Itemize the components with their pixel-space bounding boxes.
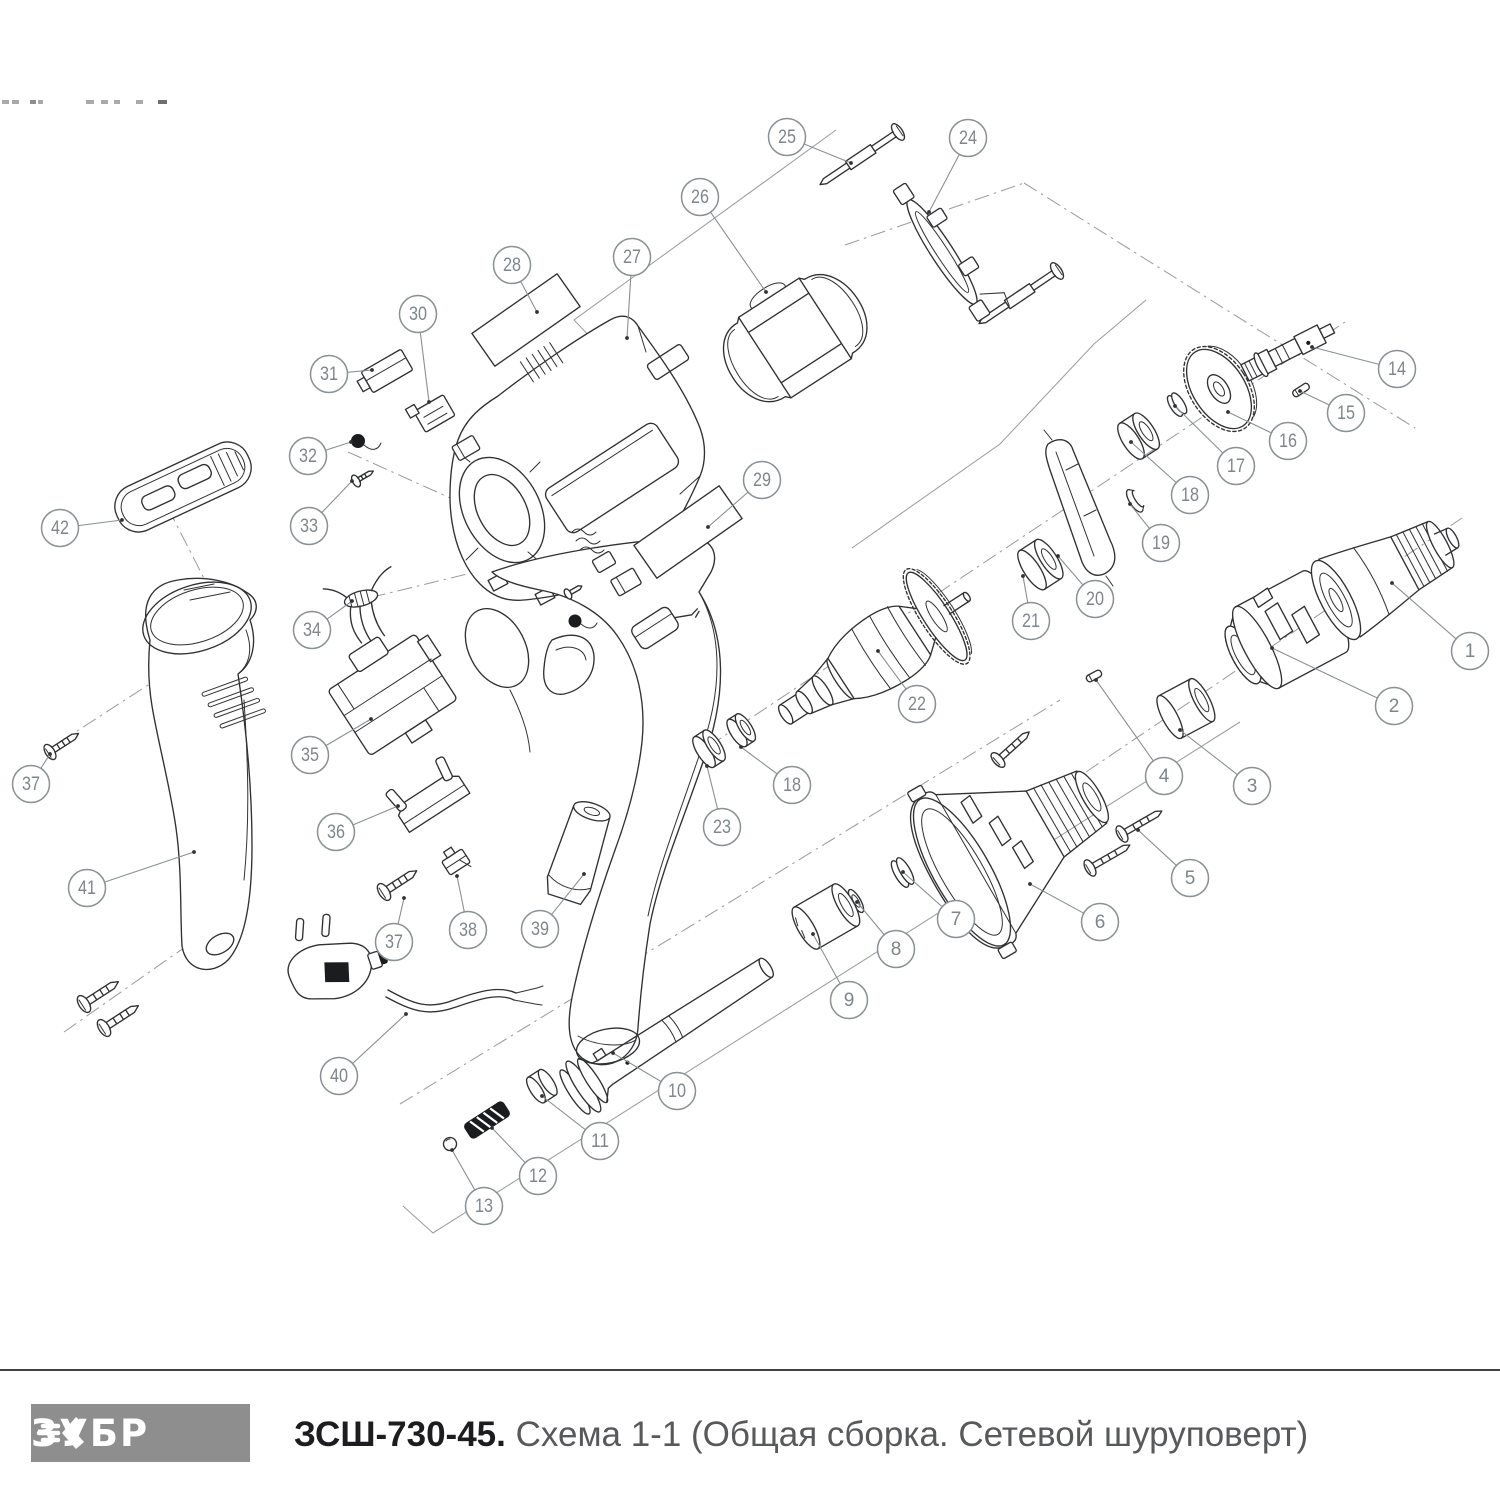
callout-25: 25	[769, 119, 853, 165]
callout-8: 8	[855, 900, 914, 967]
callout-32: 32	[290, 438, 353, 475]
svg-text:28: 28	[503, 255, 521, 276]
svg-text:6: 6	[1095, 912, 1106, 933]
screw-37c	[75, 974, 124, 1015]
callout-37: 37	[13, 752, 52, 802]
gear-16	[1169, 332, 1272, 444]
bearing-18	[1113, 409, 1164, 463]
svg-text:5: 5	[1185, 868, 1196, 889]
callout-12: 12	[490, 1126, 556, 1194]
svg-text:37: 37	[385, 932, 403, 953]
svg-text:35: 35	[301, 745, 319, 766]
svg-text:30: 30	[409, 304, 427, 325]
svg-text:38: 38	[459, 920, 477, 941]
svg-text:20: 20	[1086, 589, 1104, 610]
trigger	[544, 635, 594, 694]
callout-1: 1	[1390, 581, 1488, 669]
screw-5b	[1114, 803, 1167, 844]
callout-3: 3	[1178, 728, 1270, 804]
svg-text:29: 29	[753, 470, 771, 491]
callout-24: 24	[927, 120, 986, 214]
screw-37d	[95, 998, 144, 1039]
belt-clip-42	[108, 435, 259, 539]
svg-text:18: 18	[783, 775, 801, 796]
chuck-1	[1302, 497, 1477, 646]
screw-5a	[1082, 837, 1135, 878]
svg-text:11: 11	[591, 1131, 609, 1152]
motor-screw-25a	[815, 122, 907, 193]
svg-text:8: 8	[891, 939, 902, 960]
front-housing-grip	[453, 529, 721, 1069]
callout-34: 34	[294, 599, 354, 648]
svg-text:25: 25	[778, 127, 796, 148]
svg-text:31: 31	[320, 364, 338, 385]
svg-text:2: 2	[1389, 696, 1400, 717]
switch-35	[318, 613, 472, 766]
svg-text:1: 1	[1465, 641, 1476, 662]
callout-14: 14	[1310, 345, 1415, 387]
model-number: ЗСШ-730-45.	[294, 1415, 506, 1454]
button-32	[352, 435, 382, 450]
svg-text:32: 32	[299, 446, 317, 467]
callout-41: 41	[69, 850, 196, 906]
callout-10: 10	[611, 1051, 695, 1109]
exploded-view-drawing: 1234567891011121314151617181920212223182…	[0, 0, 1500, 1500]
svg-text:23: 23	[713, 817, 731, 838]
armature-22	[751, 548, 999, 763]
svg-text:40: 40	[330, 1066, 348, 1087]
svg-text:41: 41	[78, 878, 96, 899]
svg-text:3: 3	[1247, 776, 1258, 797]
screw-33	[350, 465, 377, 488]
svg-text:18: 18	[1181, 485, 1199, 506]
svg-text:26: 26	[691, 187, 709, 208]
svg-text:42: 42	[51, 518, 69, 539]
callout-18: 18	[739, 745, 810, 803]
svg-text:22: 22	[908, 694, 926, 715]
clip-38	[438, 843, 473, 879]
svg-text:10: 10	[668, 1081, 686, 1102]
zubr-logo: ЗУБР	[31, 1404, 250, 1462]
svg-text:21: 21	[1022, 611, 1040, 632]
brush-plate-24	[890, 170, 1012, 327]
callout-18: 18	[1129, 440, 1208, 513]
cord-knot-34	[322, 567, 408, 651]
callout-23: 23	[704, 764, 741, 845]
svg-text:36: 36	[327, 822, 345, 843]
rear-handle-41	[134, 569, 266, 969]
parts-diagram-page: 1234567891011121314151617181920212223182…	[0, 0, 1500, 1500]
diagram-caption: ЗСШ-730-45. Схема 1-1 (Общая сборка. Сет…	[294, 1416, 1474, 1454]
svg-text:9: 9	[844, 990, 855, 1011]
callout-40: 40	[321, 1012, 408, 1094]
svg-text:24: 24	[959, 128, 977, 149]
zubr-logo-icon	[31, 1404, 95, 1462]
bearing-21	[1013, 535, 1068, 593]
screw-37b	[375, 863, 422, 903]
svg-text:12: 12	[529, 1166, 547, 1187]
callout-15: 15	[1298, 389, 1364, 431]
callout-42: 42	[42, 510, 124, 547]
svg-text:34: 34	[303, 620, 321, 641]
svg-text:14: 14	[1388, 359, 1406, 380]
svg-text:7: 7	[951, 909, 962, 930]
spacer-3	[1152, 675, 1220, 741]
callout-33: 33	[291, 479, 354, 544]
pin-4	[1085, 669, 1102, 683]
svg-text:4: 4	[1159, 766, 1170, 787]
spring-12	[463, 1100, 511, 1139]
motor-screw-25b	[974, 261, 1066, 332]
callout-19: 19	[1128, 502, 1179, 561]
callout-30: 30	[400, 296, 437, 404]
callout-36: 36	[318, 804, 400, 850]
slider-31	[354, 349, 413, 397]
callout-26: 26	[682, 179, 768, 294]
svg-text:39: 39	[531, 919, 549, 940]
svg-text:27: 27	[623, 247, 641, 268]
stop-ring-11	[523, 1067, 560, 1106]
svg-text:13: 13	[475, 1196, 493, 1217]
schema-description: Схема 1-1 (Общая сборка. Сетевой шурупов…	[516, 1415, 1309, 1454]
output-shaft-14	[1239, 317, 1338, 385]
callout-38: 38	[450, 874, 487, 948]
lock-button-30	[405, 389, 455, 435]
svg-text:33: 33	[300, 516, 318, 537]
svg-text:17: 17	[1227, 456, 1245, 477]
callout-2: 2	[1270, 646, 1412, 724]
ball-13	[444, 1138, 457, 1151]
callout-37: 37	[376, 896, 413, 960]
ring-18b	[723, 711, 759, 750]
callout-6: 6	[1028, 882, 1118, 940]
svg-text:15: 15	[1337, 403, 1355, 424]
callout-5: 5	[1136, 828, 1208, 896]
callout-35: 35	[292, 717, 373, 773]
svg-text:16: 16	[1279, 431, 1297, 452]
bracket-36	[384, 754, 470, 833]
washer-17	[1165, 391, 1190, 419]
svg-text:19: 19	[1152, 533, 1170, 554]
svg-text:37: 37	[22, 774, 40, 795]
screw-5c	[989, 725, 1036, 769]
screw-37a	[42, 726, 84, 761]
footer-rule	[0, 1369, 1500, 1371]
callout-13: 13	[450, 1148, 502, 1224]
stator-26	[701, 249, 883, 419]
